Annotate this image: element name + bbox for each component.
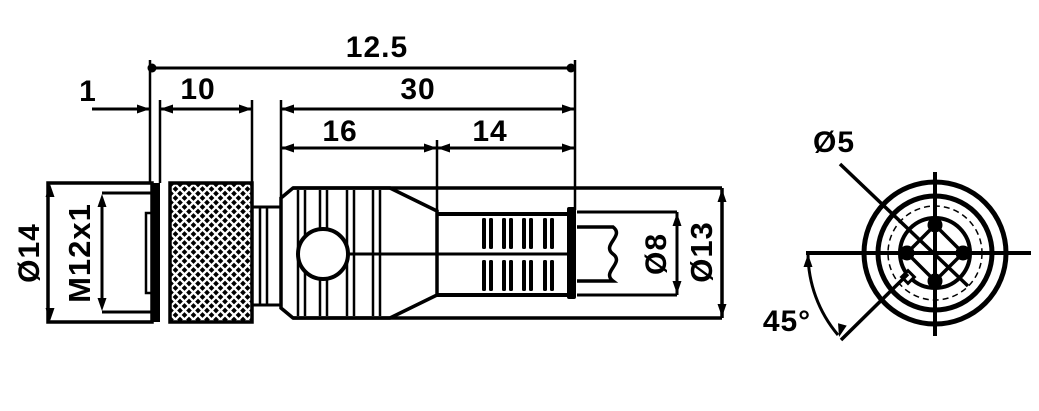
- pin-right: [956, 246, 971, 261]
- dim-body-length: 30: [281, 73, 575, 114]
- dim-front-lip: 1: [79, 75, 150, 114]
- arrow-right: [239, 105, 252, 114]
- body-diameter-label: Ø13: [684, 221, 719, 283]
- arrow-right: [562, 105, 575, 114]
- pin-circle-diameter-label: Ø5: [813, 126, 855, 159]
- arrow-left: [281, 105, 294, 114]
- dim-nut-length: 10: [160, 73, 252, 114]
- arc-arrow-top: [804, 254, 813, 267]
- neck: [252, 207, 281, 305]
- neck-grooves: [260, 207, 267, 305]
- connector-body: [281, 188, 568, 318]
- side-view: 12.5 1 10 30 16: [13, 31, 727, 322]
- technical-drawing-canvas: 12.5 1 10 30 16: [0, 0, 1039, 411]
- dim-boot-label: 14: [472, 115, 507, 148]
- arrow-left: [160, 105, 173, 114]
- front-lip-ring: [153, 183, 160, 322]
- arrow-up-d8: [673, 213, 682, 226]
- pin-top: [928, 218, 943, 233]
- dim-front-lip-label: 1: [79, 75, 97, 108]
- knurl-ring: [170, 183, 252, 322]
- arrow-mid-left: [437, 144, 450, 153]
- arrow-down-d8: [673, 281, 682, 294]
- dim-overall-label: 12.5: [346, 31, 408, 64]
- dim-dot-left: [148, 64, 157, 73]
- arrow-mid-right: [424, 144, 437, 153]
- nut-diameter-label: Ø14: [13, 223, 46, 283]
- arrow-down-d13: [718, 304, 727, 317]
- keyway-angle-ray: [841, 274, 908, 340]
- set-screw-hole: [298, 229, 348, 279]
- arrow-right: [137, 105, 150, 114]
- arrow-left: [281, 144, 294, 153]
- thread-label: M12x1: [62, 203, 97, 303]
- keyway-angle-label: 45°: [763, 305, 811, 338]
- dim-overall: 12.5: [148, 31, 576, 73]
- dim-dot-right: [567, 64, 576, 73]
- arrow-right: [562, 144, 575, 153]
- arrow-up-d13: [718, 189, 727, 202]
- boot-end-face: [567, 207, 576, 299]
- cable-break-line: [577, 227, 616, 281]
- angle-arc: [808, 253, 838, 335]
- pin-bottom: [928, 274, 943, 289]
- dim-grip-boot: 16 14: [281, 115, 575, 153]
- coupling-nut: Ø14 M12x1: [13, 183, 160, 322]
- dim-nut-label: 10: [180, 73, 215, 106]
- pin-left: [900, 246, 915, 261]
- dim-keyway-angle: 45°: [763, 253, 908, 340]
- dim-grip-label: 16: [322, 115, 357, 148]
- connector-drawing: 12.5 1 10 30 16: [0, 0, 1039, 411]
- cable-diameter-label: Ø8: [640, 233, 673, 275]
- front-view: 45° Ø5: [763, 126, 1031, 340]
- dim-body-label: 30: [400, 73, 435, 106]
